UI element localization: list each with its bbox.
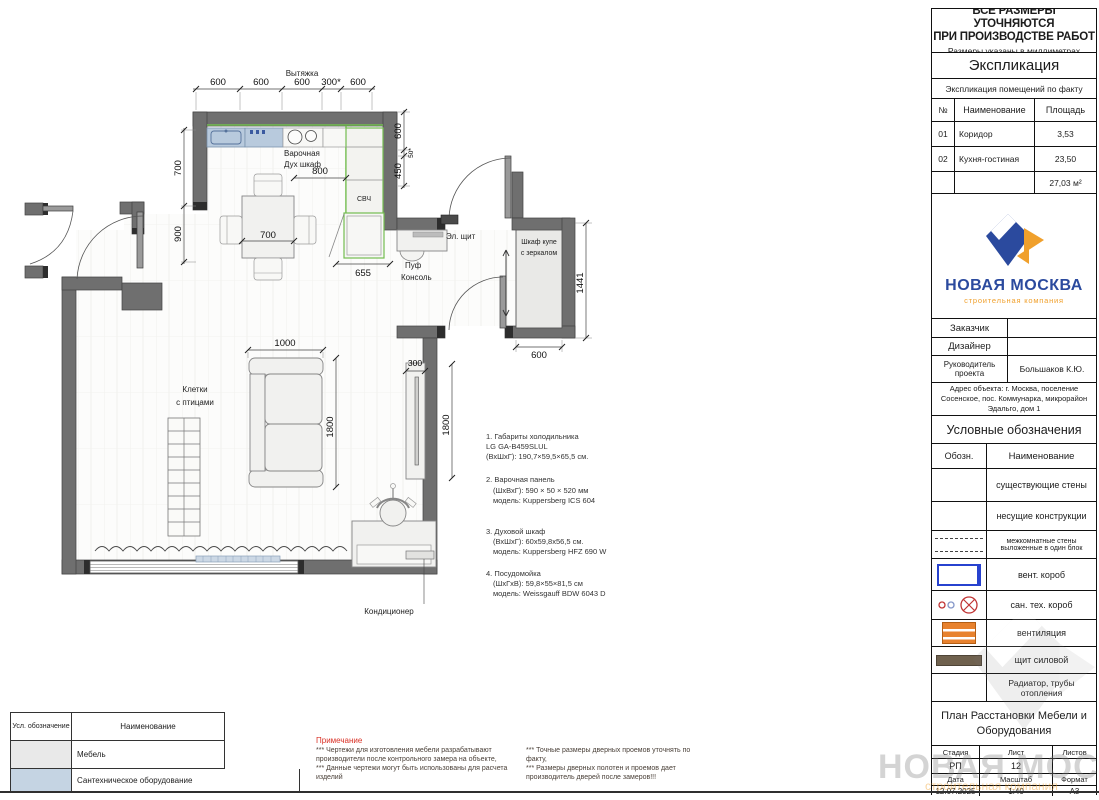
table-header-row: Усл. обозначение Наименование — [10, 712, 300, 741]
explication-row: 01 Коридор 3,53 — [932, 122, 1096, 147]
title-block: ВСЕ РАЗМЕРЫ УТОЧНЯЮТСЯ ПРИ ПРОИЗВОДСТВЕ … — [931, 8, 1097, 795]
fridge — [344, 213, 384, 258]
cages-label2: с птицами — [176, 398, 214, 407]
dim-top: 600 600 600 300* 600 — [193, 77, 375, 110]
tv-screen — [415, 377, 419, 465]
row-label: Сантехническое оборудование — [72, 769, 300, 793]
san-box-symbol — [932, 591, 987, 619]
col-name-header: Наименование — [72, 712, 225, 741]
col-symbol-header: Усл. обозначение — [10, 712, 72, 741]
equipment-notes: 1. Габариты холодильника LG GA-B459SLUL … — [486, 432, 696, 613]
plumbing-swatch — [10, 769, 72, 793]
company-logo: НОВАЯ МОСКВА строительная компания — [932, 194, 1096, 319]
designer-row: Дизайнер — [932, 338, 1096, 356]
dim-label: 600 — [350, 77, 366, 88]
equipment-note: 3. Духовой шкаф (ВхШхГ): 60х59,8х56,5 см… — [486, 527, 696, 557]
equipment-note: 2. Варочная панель (ШхВхГ): 590 × 50 × 5… — [486, 475, 696, 505]
console-label: Консоль — [401, 273, 432, 282]
dim-label: 50* — [408, 148, 415, 158]
legend-row-power-panel: щит силовой — [932, 647, 1096, 674]
radiator-symbol — [932, 674, 987, 701]
notes-block: Примечание *** Чертежи для изготовления … — [316, 736, 710, 782]
hob-burner — [306, 131, 317, 142]
legend-header-row: Обозн. Наименование — [932, 444, 1096, 469]
equipment-note: 1. Габариты холодильника LG GA-B459SLUL … — [486, 432, 696, 462]
sofa — [249, 358, 323, 487]
window — [90, 561, 298, 573]
wardrobe-label: Шкаф купе — [521, 239, 557, 246]
cages-label: Клетки — [182, 385, 207, 394]
dim-label: 1800 — [441, 414, 452, 435]
doc-title: План Расстановки Мебели и Оборудования — [932, 702, 1096, 746]
sheet-frame-line — [0, 791, 1099, 793]
date-labels-row: Дата Масштаб Формат — [932, 774, 1096, 786]
chair — [294, 216, 316, 244]
dim-label: 600 — [253, 77, 269, 88]
tv-unit — [406, 363, 425, 479]
legend-row-san-box: сан. тех. короб — [932, 591, 1096, 620]
dim-label: 655 — [355, 268, 371, 279]
furniture-swatch — [10, 741, 72, 769]
chair — [254, 258, 282, 280]
bird-cages — [168, 418, 200, 536]
el-panel-label: Эл. щит — [446, 232, 476, 241]
legend-row-radiator: Радиатор, трубы отопления — [932, 674, 1096, 702]
explication-total-row: 27,03 м² — [932, 172, 1096, 194]
dashed-wall-symbol — [932, 531, 987, 558]
faucet — [225, 130, 228, 133]
total-area: 27,03 м² — [1035, 172, 1096, 193]
customer-value — [1008, 319, 1096, 337]
explication-header-row: № Наименование Площадь — [932, 99, 1096, 122]
existing-walls-symbol — [932, 469, 987, 501]
designer-value — [1008, 338, 1096, 355]
dim-label: 600 — [393, 123, 404, 139]
col-num: № — [932, 99, 955, 121]
drawing-sheet: 600 600 600 300* 600 Вытяжка 600 50* 450… — [0, 0, 1099, 800]
logo-title: НОВАЯ МОСКВА — [945, 277, 1083, 295]
notes-title: Примечание — [316, 736, 710, 745]
explication-row: 02 Кухня-гостиная 23,50 — [932, 147, 1096, 172]
dim-label: 700 — [173, 160, 184, 176]
legend-row-ventilation: вентиляция — [932, 620, 1096, 647]
ventilation-symbol — [932, 620, 987, 646]
dim-label: 450 — [393, 163, 404, 179]
table-row: Мебель — [10, 741, 300, 769]
stage-value: РП — [932, 759, 980, 773]
legend-title: Условные обозначения — [932, 416, 1096, 444]
legend-row-vent-box: вент. короб — [932, 559, 1096, 591]
floor-pattern — [76, 126, 516, 560]
dim-label: 600 — [294, 77, 310, 88]
pouf-label: Пуф — [405, 261, 422, 270]
vent-box-symbol — [932, 559, 987, 590]
logo-subtitle: строительная компания — [964, 296, 1064, 305]
furniture-legend-table: Усл. обозначение Наименование Мебель Сан… — [10, 712, 300, 793]
col-area: Площадь — [1035, 99, 1096, 121]
stage-labels-row: Стадия Лист Листов — [932, 746, 1096, 759]
explication-title: Экспликация — [932, 53, 1096, 79]
hob-label: Варочная — [284, 149, 320, 158]
table-row: Сантехническое оборудование — [10, 769, 300, 793]
dim-label: 900 — [173, 226, 184, 242]
dim-label: 1441 — [575, 272, 586, 293]
equipment-note: 4. Посудомойка (ШхГхВ): 59,8×55×81,5 см … — [486, 569, 696, 599]
radiator — [196, 556, 280, 562]
bearing-structures-symbol — [932, 502, 987, 530]
chair — [254, 174, 282, 196]
dim-label: 700 — [260, 230, 276, 241]
hob-burner — [288, 130, 302, 144]
air-conditioner — [406, 551, 434, 604]
hood-label: Вытяжка — [286, 69, 319, 78]
col-name: Наименование — [955, 99, 1035, 121]
dim-label: 300* — [321, 77, 341, 88]
dim-label: 1800 — [325, 416, 336, 437]
dim-label: 1000 — [274, 338, 295, 349]
explication-subtitle: Экспликация помещений по факту — [932, 79, 1096, 99]
manager-row: Руководитель проекта Большаков К.Ю. — [932, 356, 1096, 383]
legend-row-existing-walls: существующие стены — [932, 469, 1096, 502]
chair — [220, 216, 242, 244]
power-panel-symbol — [932, 647, 987, 673]
notes-col2: *** Точные размеры дверных проемов уточн… — [526, 746, 706, 782]
el-panel — [441, 215, 458, 224]
row-label: Мебель — [72, 741, 225, 769]
dim-label: 300 — [408, 358, 422, 368]
dim-label: 600 — [531, 350, 547, 361]
object-address: Адрес объекта: г. Москва, поселение Сосе… — [932, 383, 1096, 416]
wardrobe-label2: с зеркалом — [521, 250, 558, 257]
dim-label: 600 — [210, 77, 226, 88]
stage-values-row: РП 12 — [932, 759, 1096, 774]
legend-row-block-walls: межкомнатные стены выложенные в один бло… — [932, 531, 1096, 559]
oven-label: Дух шкаф — [284, 160, 321, 169]
legend-row-bearing: несущие конструкции — [932, 502, 1096, 531]
logo-mark — [981, 208, 1047, 274]
sheet-value: 12 — [980, 759, 1053, 773]
ac-label: Кондиционер — [364, 607, 414, 616]
customer-row: Заказчик — [932, 319, 1096, 338]
notes-col1: *** Чертежи для изготовления мебели разр… — [316, 746, 516, 782]
size-warning: ВСЕ РАЗМЕРЫ УТОЧНЯЮТСЯ ПРИ ПРОИЗВОДСТВЕ … — [932, 9, 1096, 53]
office-chair — [380, 500, 406, 526]
microwave-label: СВЧ — [357, 196, 371, 203]
manager-value: Большаков К.Ю. — [1008, 356, 1096, 382]
sheets-value — [1053, 759, 1096, 773]
